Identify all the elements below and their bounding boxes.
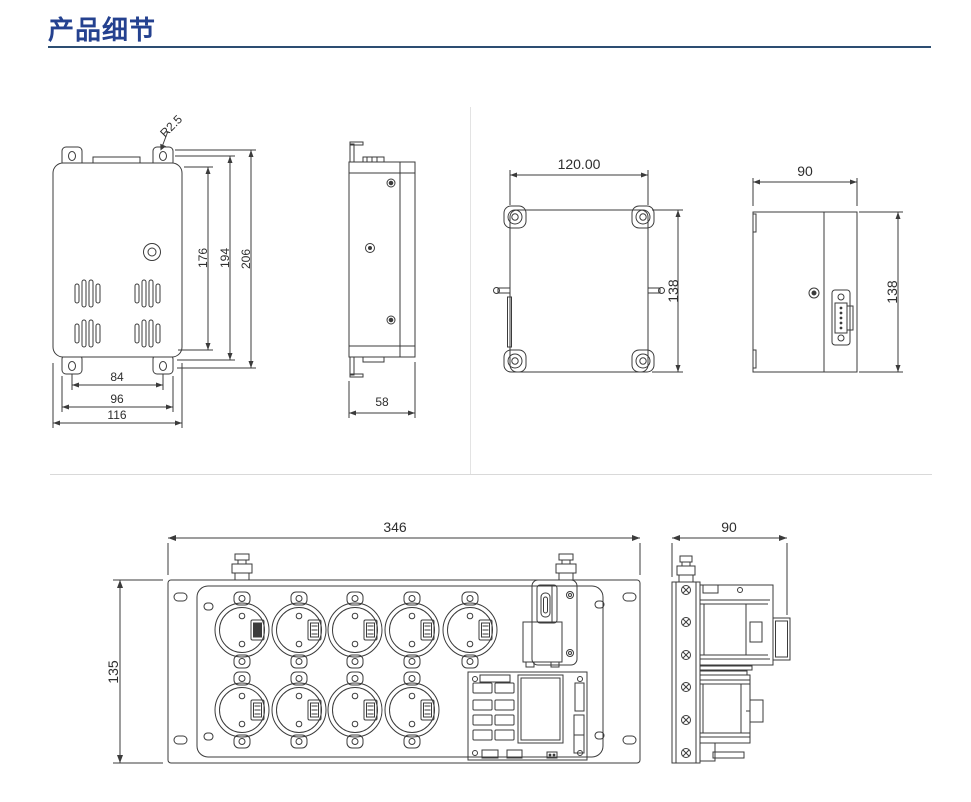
- rear-view-drawing: 120.00 138: [490, 150, 710, 400]
- top-ridge: [93, 157, 140, 163]
- vertical-divider: [470, 107, 471, 474]
- device-body-side: [349, 162, 415, 357]
- dim-138-label: 138: [665, 279, 681, 303]
- horizontal-divider: [50, 474, 932, 475]
- rear-side-view-drawing: 90 138: [740, 150, 920, 400]
- device-body: [53, 163, 182, 357]
- top-module: [700, 585, 790, 665]
- dim-120: [510, 170, 648, 205]
- dim-176-label: 176: [196, 248, 210, 268]
- device-body-rear-side: [753, 212, 857, 372]
- bottom-tabs: [700, 743, 744, 761]
- side-latch-pins: [494, 288, 665, 294]
- panel-side-drawing: 90: [655, 505, 805, 795]
- dim-90-label: 90: [797, 163, 813, 179]
- corner-holes: [508, 210, 650, 368]
- dim-radius-label: R2.5: [157, 112, 185, 140]
- side-view-drawing: 58: [330, 130, 430, 430]
- dim-120-label: 120.00: [558, 156, 601, 172]
- dim-84-label: 84: [110, 370, 124, 384]
- dim-346-label: 346: [383, 519, 407, 535]
- plate-screws: [682, 586, 691, 758]
- dim-135-label: 135: [105, 660, 121, 684]
- din-rail-clip-bottom: [350, 357, 384, 377]
- dim-90: [753, 178, 857, 206]
- dim-206-label: 206: [239, 249, 253, 269]
- product-detail-page: 产品细节: [0, 0, 971, 802]
- dim-194-label: 194: [218, 248, 232, 268]
- cable-gland-side: [677, 556, 695, 582]
- front-plate: [672, 582, 700, 763]
- dim-58-label: 58: [375, 395, 389, 409]
- dim-90-label: 90: [721, 519, 737, 535]
- dsub-connector: [832, 290, 853, 345]
- case-screw: [809, 288, 819, 298]
- page-title: 产品细节: [48, 10, 156, 47]
- corner-ears: [504, 206, 654, 372]
- cable-gland-right: [556, 554, 576, 580]
- front-view-drawing: R2.5 176 194 206 84 96 116: [40, 105, 270, 440]
- din-rail-clip-top: [350, 142, 384, 162]
- dim-138-label: 138: [884, 280, 900, 304]
- dim-116-label: 116: [107, 408, 126, 422]
- bottom-module: [700, 675, 763, 743]
- cable-gland-left: [232, 554, 252, 580]
- dim-96-label: 96: [110, 392, 124, 406]
- title-underline: [48, 46, 931, 48]
- dim-346: [168, 535, 640, 575]
- device-body-rear: [510, 210, 648, 372]
- dim-58: [349, 362, 415, 418]
- panel-front-drawing: 346 135: [95, 505, 660, 795]
